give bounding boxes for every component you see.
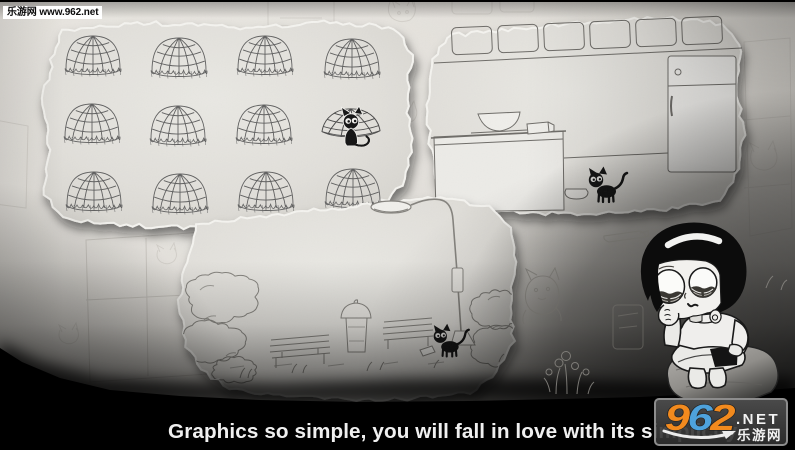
svg-text:.NET: .NET	[736, 411, 780, 428]
svg-text:乐游网: 乐游网	[737, 427, 782, 443]
svg-text:962: 962	[665, 400, 736, 438]
